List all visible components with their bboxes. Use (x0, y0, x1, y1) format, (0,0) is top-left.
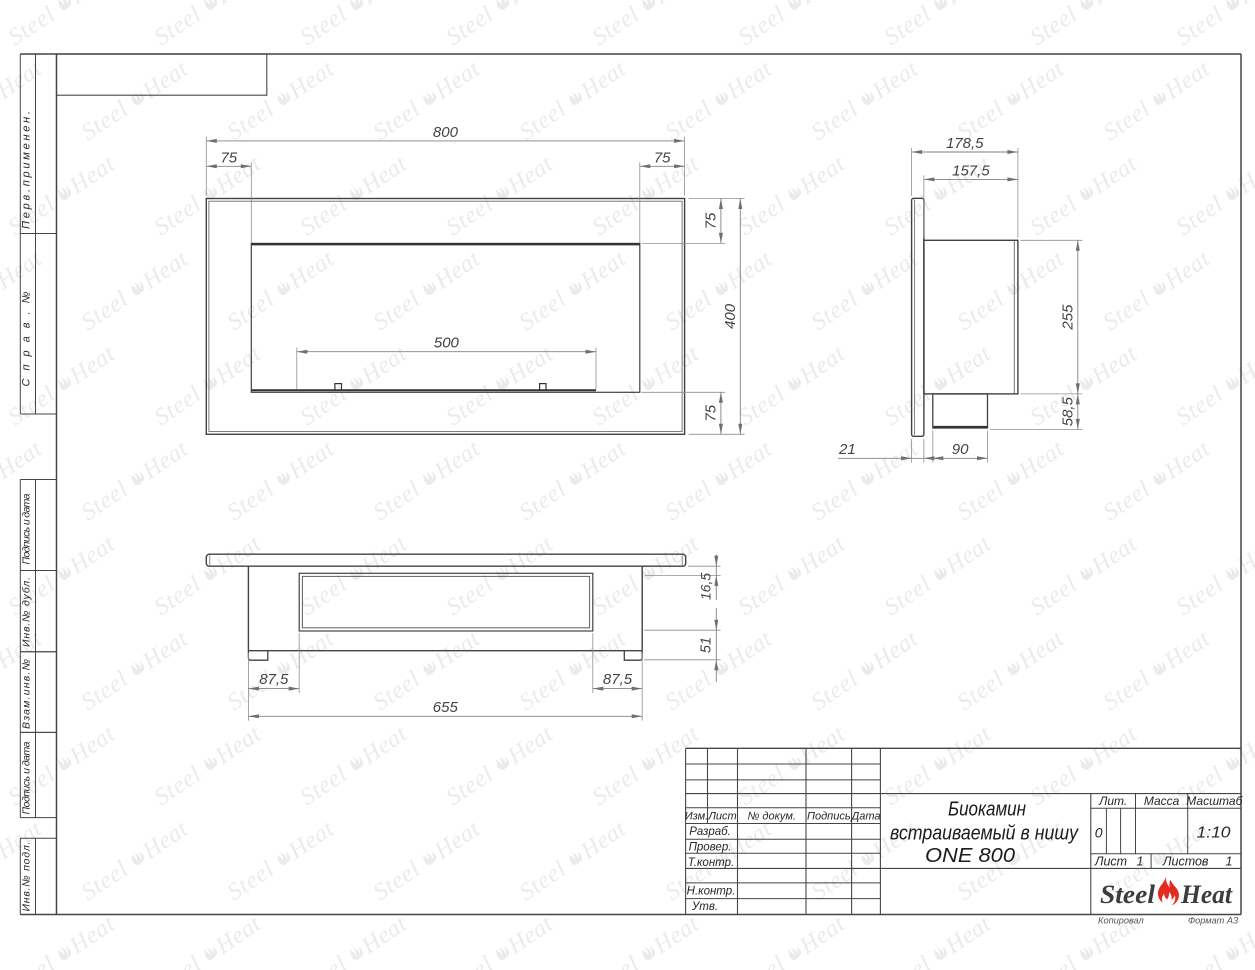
svg-text:Подпись: Подпись (807, 811, 851, 823)
svg-text:Провер.: Провер. (689, 842, 732, 854)
svg-text:Т.контр.: Т.контр. (688, 857, 734, 869)
svg-text:Листов: Листов (1162, 854, 1209, 868)
svg-text:Биокамин: Биокамин (948, 799, 1026, 821)
svg-text:1: 1 (1137, 854, 1144, 868)
svg-text:Копировал: Копировал (1098, 916, 1144, 926)
svg-text:400: 400 (722, 303, 739, 329)
svg-text:Инв.№ подл.: Инв.№ подл. (21, 842, 33, 912)
svg-text:Утв.: Утв. (691, 901, 718, 913)
svg-text:21: 21 (838, 441, 856, 458)
svg-text:Справ.№: Справ.№ (21, 291, 33, 386)
svg-text:Разраб.: Разраб. (689, 826, 731, 838)
svg-text:Лист: Лист (1094, 854, 1127, 868)
svg-text:Дата: Дата (849, 811, 880, 823)
svg-text:75: 75 (654, 149, 671, 166)
svg-text:Steel: Steel (1100, 880, 1156, 909)
svg-text:Подпись и дата: Подпись и дата (21, 741, 33, 814)
svg-text:Лит.: Лит. (1098, 794, 1127, 808)
svg-text:1: 1 (1226, 854, 1233, 868)
svg-text:58,5: 58,5 (1059, 396, 1076, 426)
svg-text:87,5: 87,5 (259, 671, 289, 688)
svg-text:655: 655 (433, 699, 459, 716)
svg-text:51: 51 (699, 637, 715, 653)
svg-text:Подпись и дата: Подпись и дата (21, 493, 33, 564)
svg-text:Формат А3: Формат А3 (1188, 916, 1239, 926)
svg-text:178,5: 178,5 (946, 135, 984, 152)
svg-text:75: 75 (702, 212, 719, 229)
svg-text:№ докум.: № докум. (747, 811, 795, 823)
svg-text:157,5: 157,5 (952, 162, 990, 179)
svg-text:Heat: Heat (1180, 880, 1233, 909)
svg-text:75: 75 (220, 149, 237, 166)
svg-text:Инв.№ дубл.: Инв.№ дубл. (21, 577, 33, 647)
svg-text:ONE 800: ONE 800 (925, 845, 1015, 867)
svg-text:75: 75 (702, 404, 719, 421)
svg-text:255: 255 (1059, 304, 1076, 331)
svg-text:87,5: 87,5 (603, 671, 633, 688)
svg-text:Изм.: Изм. (685, 811, 708, 823)
svg-text:0: 0 (1095, 825, 1103, 841)
svg-text:Масса: Масса (1144, 794, 1180, 808)
svg-text:1:10: 1:10 (1197, 825, 1231, 842)
svg-text:800: 800 (433, 124, 459, 141)
svg-text:16,5: 16,5 (698, 573, 714, 600)
svg-text:90: 90 (952, 441, 969, 458)
svg-text:Масштаб: Масштаб (1186, 794, 1243, 808)
svg-text:встраиваемый в нишу: встраиваемый в нишу (890, 823, 1079, 845)
svg-text:Н.контр.: Н.контр. (687, 886, 736, 898)
svg-text:500: 500 (434, 335, 460, 352)
svg-text:Взам.инв.№: Взам.инв.№ (21, 659, 33, 729)
svg-text:Лист: Лист (707, 811, 736, 823)
